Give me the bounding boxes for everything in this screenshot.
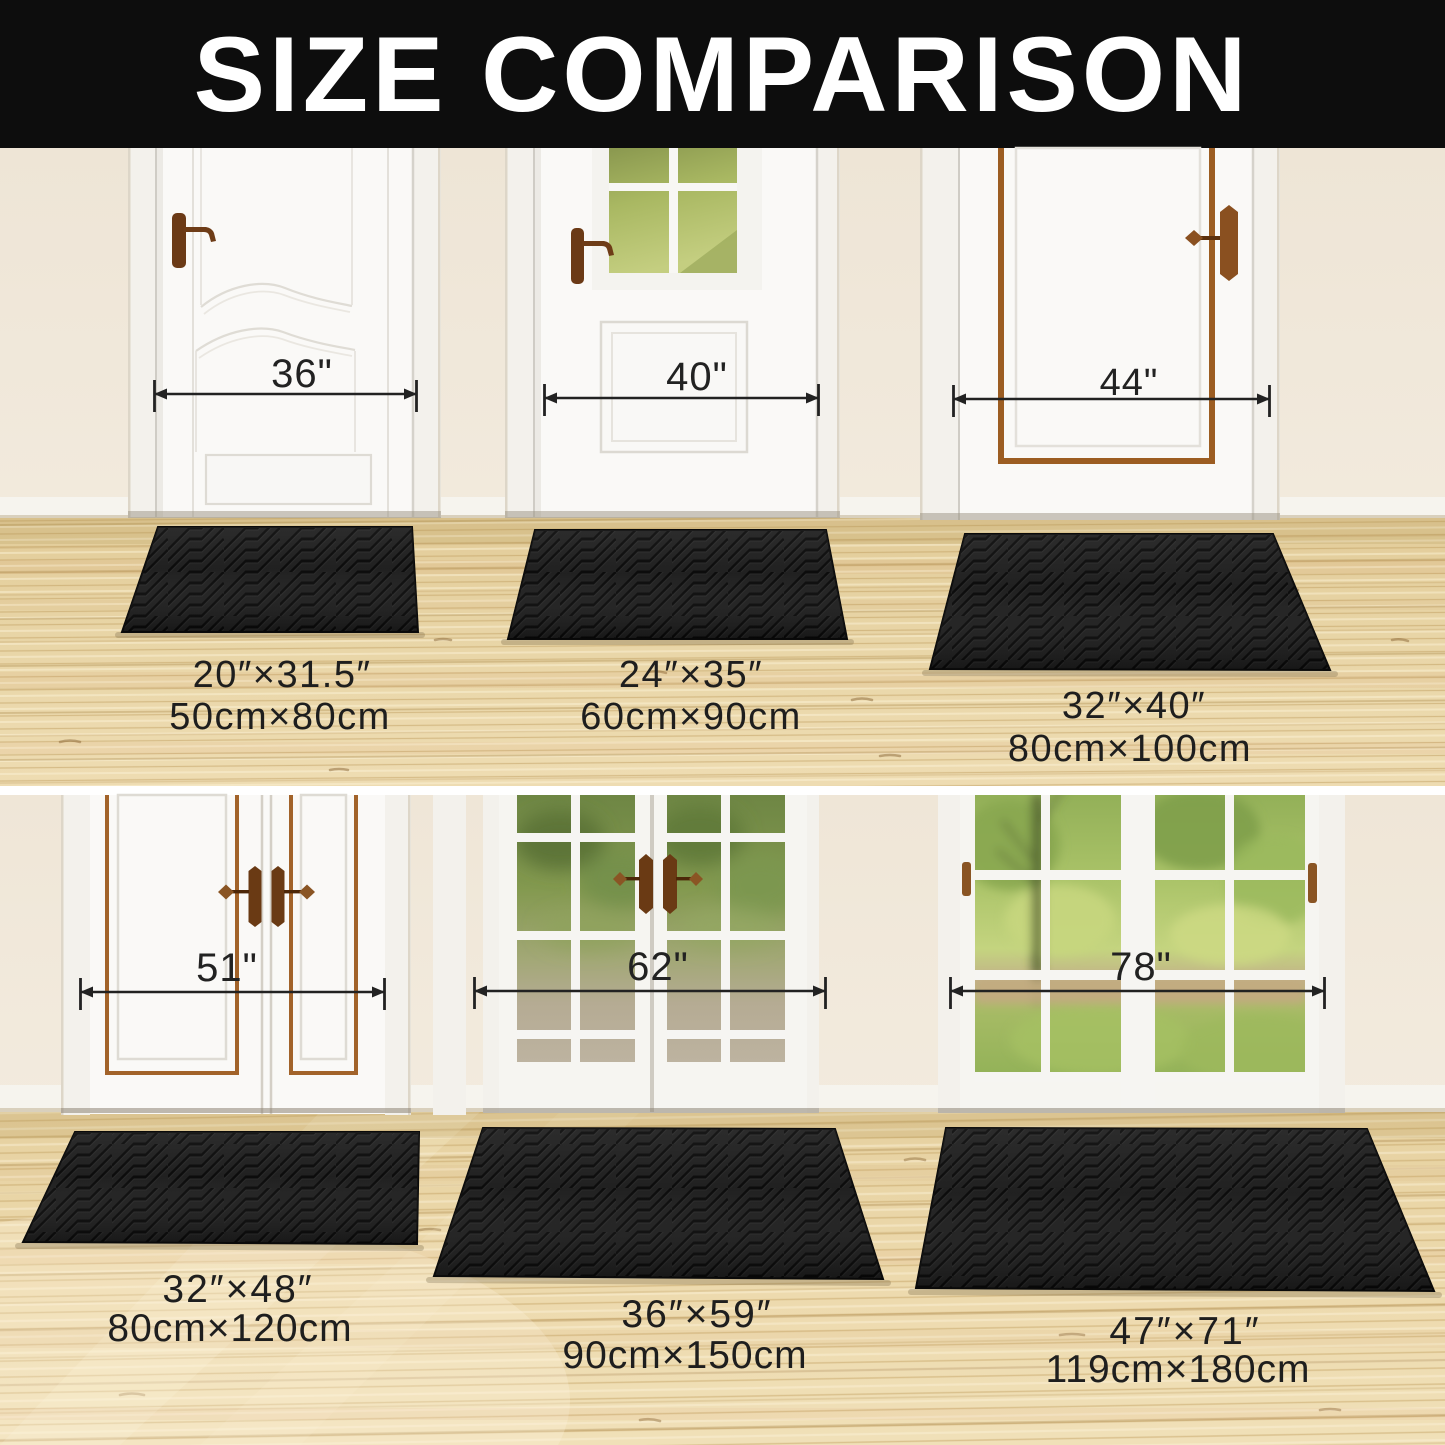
svg-text:32″×48″: 32″×48″ xyxy=(162,1268,313,1311)
svg-text:51": 51" xyxy=(196,946,258,990)
svg-text:40": 40" xyxy=(666,355,728,399)
svg-text:44": 44" xyxy=(1100,362,1159,404)
svg-text:36″×59″: 36″×59″ xyxy=(621,1293,772,1336)
svg-text:90cm×150cm: 90cm×150cm xyxy=(562,1334,807,1377)
svg-text:36": 36" xyxy=(271,352,333,396)
svg-text:50cm×80cm: 50cm×80cm xyxy=(169,696,391,738)
svg-text:62": 62" xyxy=(627,945,689,989)
svg-text:47″×71″: 47″×71″ xyxy=(1109,1310,1260,1353)
svg-text:24″×35″: 24″×35″ xyxy=(619,654,763,696)
svg-text:80cm×100cm: 80cm×100cm xyxy=(1008,728,1252,770)
svg-text:SIZE COMPARISON: SIZE COMPARISON xyxy=(194,14,1251,134)
svg-text:60cm×90cm: 60cm×90cm xyxy=(580,696,802,738)
svg-text:78": 78" xyxy=(1110,945,1172,989)
svg-text:20″×31.5″: 20″×31.5″ xyxy=(193,654,372,696)
svg-text:119cm×180cm: 119cm×180cm xyxy=(1046,1348,1311,1391)
svg-text:80cm×120cm: 80cm×120cm xyxy=(107,1307,352,1350)
svg-text:32″×40″: 32″×40″ xyxy=(1062,685,1206,727)
